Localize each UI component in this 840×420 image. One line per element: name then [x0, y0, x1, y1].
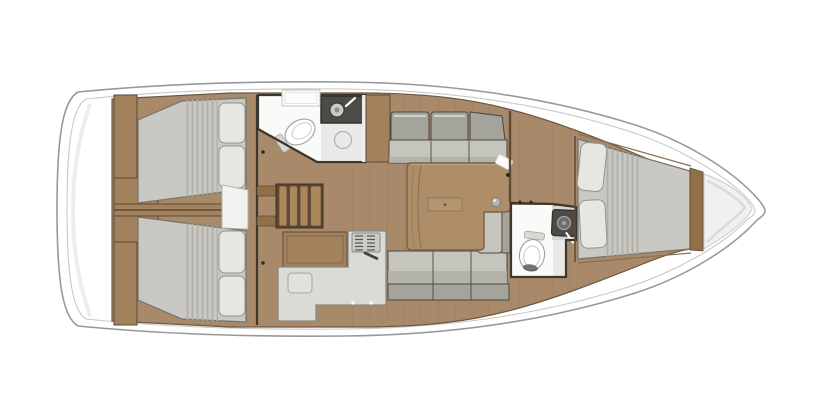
- stair-step-1: [279, 186, 287, 226]
- galley-sink: [288, 273, 312, 293]
- shower-sink-drain: [335, 108, 340, 113]
- starboard-cabin-door-handle: [261, 261, 265, 265]
- v-berth-pillow-1: [577, 142, 608, 192]
- galley-knob-1: [351, 301, 354, 304]
- forward-head-door-hinge-1: [519, 201, 522, 204]
- starboard-settee-back: [388, 284, 509, 300]
- cup-highlight: [493, 199, 496, 202]
- forward-head-floor-right: [553, 240, 566, 277]
- forward-head-door-hinge-2: [530, 201, 533, 204]
- galley-cabinet: [283, 232, 347, 267]
- aft-head-shower-floor: [321, 123, 364, 160]
- starboard-berth-pillow-1: [219, 231, 245, 273]
- starboard-settee-seat-shade: [388, 271, 507, 284]
- aft-cabin-divider-shelf: [222, 185, 248, 229]
- v-berth-blanket-texture: [604, 146, 640, 256]
- wardrobe-edge-sliver: [362, 95, 366, 162]
- v-berth-pillow-2: [579, 199, 607, 248]
- aft-cabin-starboard-berth: [138, 217, 246, 322]
- port-cabin-door-handle: [261, 150, 265, 154]
- port-berth-pillow-2: [219, 146, 245, 188]
- port-berth-blanket-texture: [185, 99, 218, 197]
- mast-foot-dot: [444, 203, 447, 206]
- aft-cabins: [114, 95, 265, 325]
- stair-step-4: [311, 186, 322, 226]
- stair-step-3: [300, 186, 308, 226]
- galley-knob-2: [369, 301, 372, 304]
- forward-cabin-door-handle: [506, 173, 510, 177]
- stair-step-2: [290, 186, 298, 226]
- stair-rail-upper: [257, 186, 276, 196]
- oven-handle-knob: [378, 258, 381, 261]
- yacht-floorplan: [0, 0, 840, 420]
- starboard-berth-blanket-texture: [185, 223, 218, 321]
- bow-step-panel: [690, 168, 703, 251]
- port-berth-pillow-1: [219, 103, 245, 143]
- wardrobe: [366, 95, 390, 162]
- forward-head: [511, 201, 577, 278]
- port-settee-seat-shade: [389, 157, 507, 163]
- port-settee: [389, 112, 507, 163]
- cup: [492, 198, 501, 207]
- starboard-berth-pillow-2: [219, 276, 245, 316]
- yacht-floorplan-image: [0, 0, 840, 420]
- stair-rail-lower: [257, 216, 276, 226]
